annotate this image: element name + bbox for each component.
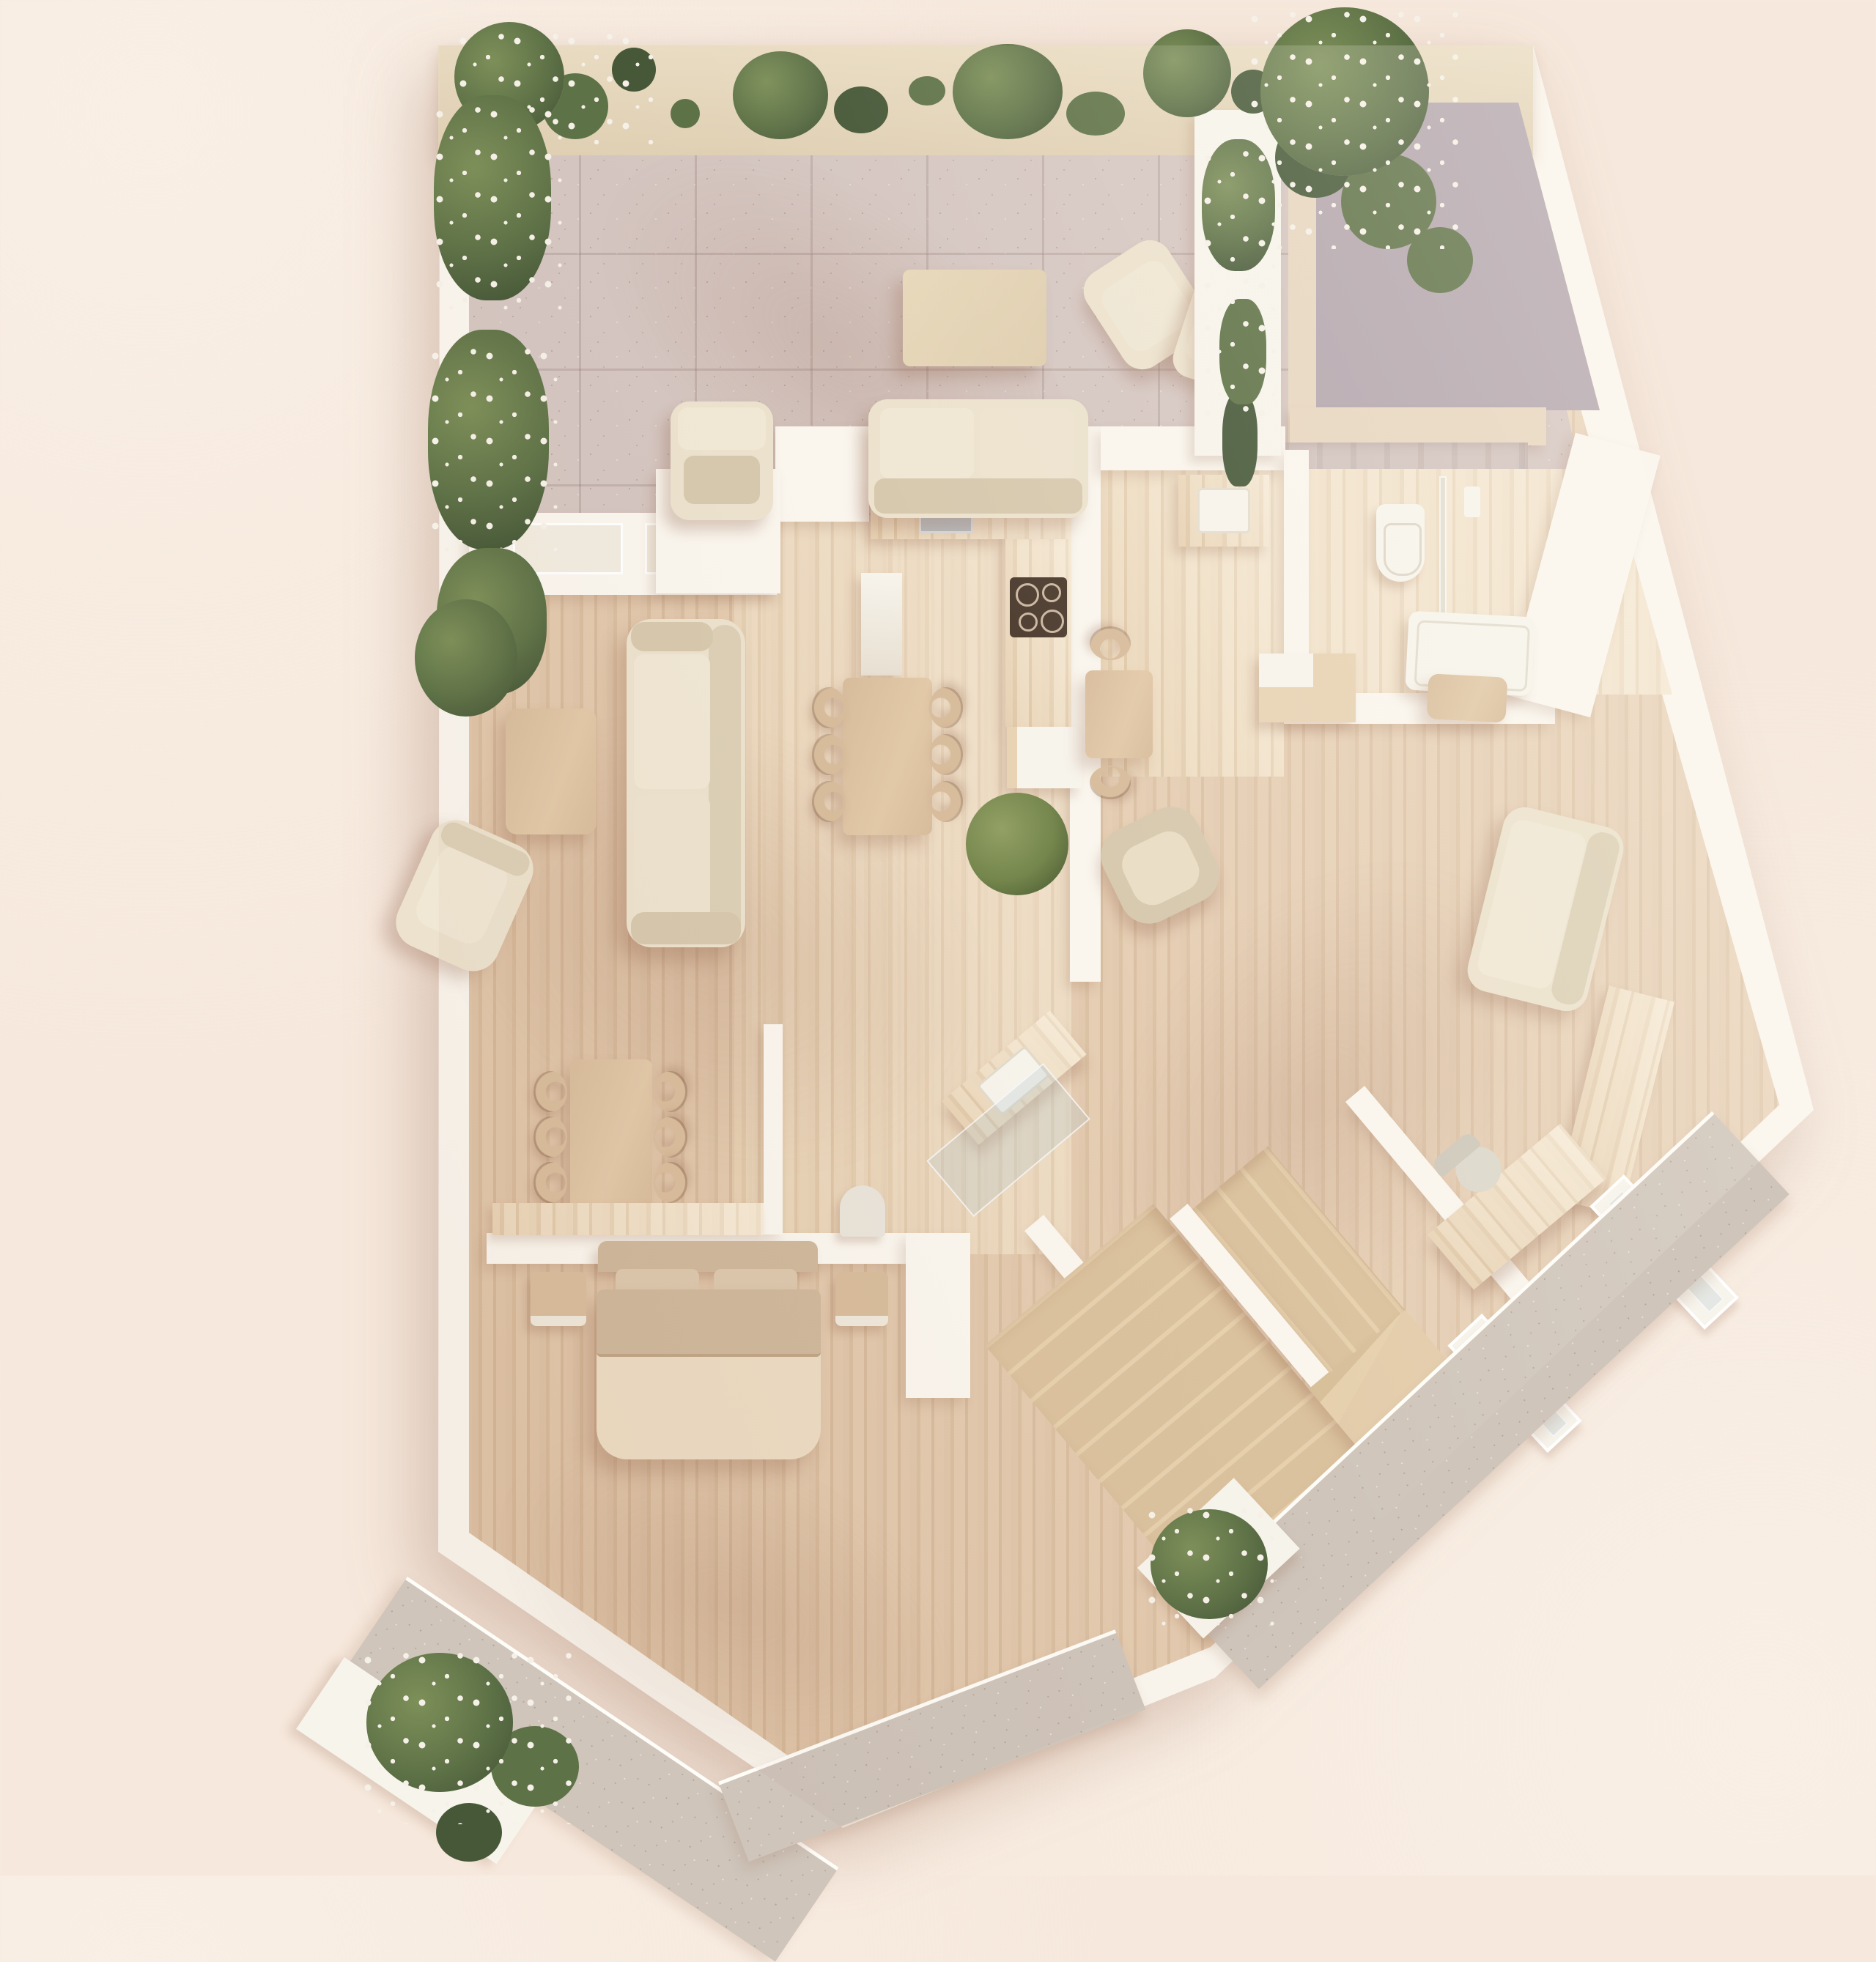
outdoor-table [903, 270, 1046, 366]
dining-chair [812, 781, 846, 822]
living-plant [415, 599, 517, 717]
powder-sink [1197, 488, 1250, 533]
dining-table [843, 678, 932, 835]
cooktop-burner-4 [1041, 610, 1064, 633]
sofa-backrest [709, 625, 741, 941]
kitchen-island [1007, 727, 1082, 788]
toilet [1376, 504, 1425, 582]
dining-chair [929, 734, 963, 775]
terrace-armchair-back [678, 407, 766, 450]
pergola-vine-2 [733, 51, 828, 139]
dining-chair [929, 687, 963, 728]
outdoor-sofa-cushion-l [880, 408, 974, 478]
dining-chair [929, 781, 963, 822]
lounge-table [1085, 670, 1153, 758]
sofa-cushion-bottom [634, 795, 710, 930]
sofa-cushion-top [634, 654, 710, 789]
nightstand-left [531, 1272, 586, 1326]
sofa-arm-bottom [631, 912, 741, 944]
outdoor-sofa-back [874, 478, 1082, 514]
bed-top-sheet [597, 1289, 821, 1357]
cooktop-burner-3 [1019, 612, 1038, 632]
outdoor-sofa-cushion-r [980, 408, 1074, 478]
console-shelf [492, 1203, 764, 1235]
wall-bedroom-right [764, 1024, 783, 1234]
pergola-vine-3 [953, 44, 1063, 139]
terrace-planter-flowers [1199, 147, 1279, 425]
study-chair [533, 1162, 567, 1203]
terrace-armchair [671, 401, 773, 520]
wall-stub-bedside [906, 1233, 970, 1398]
lounge-chair [1090, 626, 1131, 660]
bed-headboard [598, 1241, 818, 1272]
lounge-armchair-cushion [1115, 824, 1206, 911]
scene-background: { "scene": { "kind": "architectural-floo… [0, 0, 1876, 1876]
dining-chair [812, 734, 846, 775]
wall-pillar-terrace [775, 426, 869, 522]
study-chair [654, 1117, 687, 1158]
terrace-armchair-cushion [684, 456, 760, 504]
bed-duvet [597, 1289, 821, 1459]
arched-lamp [840, 1185, 885, 1237]
cooktop-burner-1 [1016, 583, 1039, 607]
upper-landing-edge [1290, 407, 1546, 445]
dining-chair [812, 687, 846, 728]
coffee-table [506, 708, 597, 834]
flush-plate [1464, 486, 1480, 517]
study-table [570, 1059, 652, 1209]
lounge-chair [1090, 766, 1131, 799]
lounge-stepped-cabinet-top [1259, 654, 1313, 687]
planter-bottom-left-flowers [359, 1648, 579, 1824]
outdoor-sofa [868, 399, 1088, 518]
living-sofa [627, 619, 745, 947]
pergola-vine-4 [1143, 29, 1231, 117]
left-planter-flowers-2 [426, 344, 558, 564]
lounge-stepped-cabinet [1259, 654, 1356, 722]
study-chair [533, 1071, 567, 1112]
study-chair [654, 1071, 687, 1112]
study-chair [533, 1117, 567, 1158]
kitchen-plant [966, 793, 1068, 895]
planter-bottom-right-flowers [1143, 1503, 1275, 1628]
fridge-cabinet [861, 573, 902, 675]
cooktop-burner-2 [1042, 583, 1061, 602]
study-chair [654, 1162, 687, 1203]
sofa-arm-top [631, 622, 713, 651]
bath-step-stool [1426, 673, 1507, 723]
left-planter-flowers-1 [431, 103, 563, 315]
nightstand-right [835, 1272, 888, 1326]
toilet-seat-line [1384, 523, 1422, 576]
floor-plan-canvas [0, 0, 1876, 1876]
